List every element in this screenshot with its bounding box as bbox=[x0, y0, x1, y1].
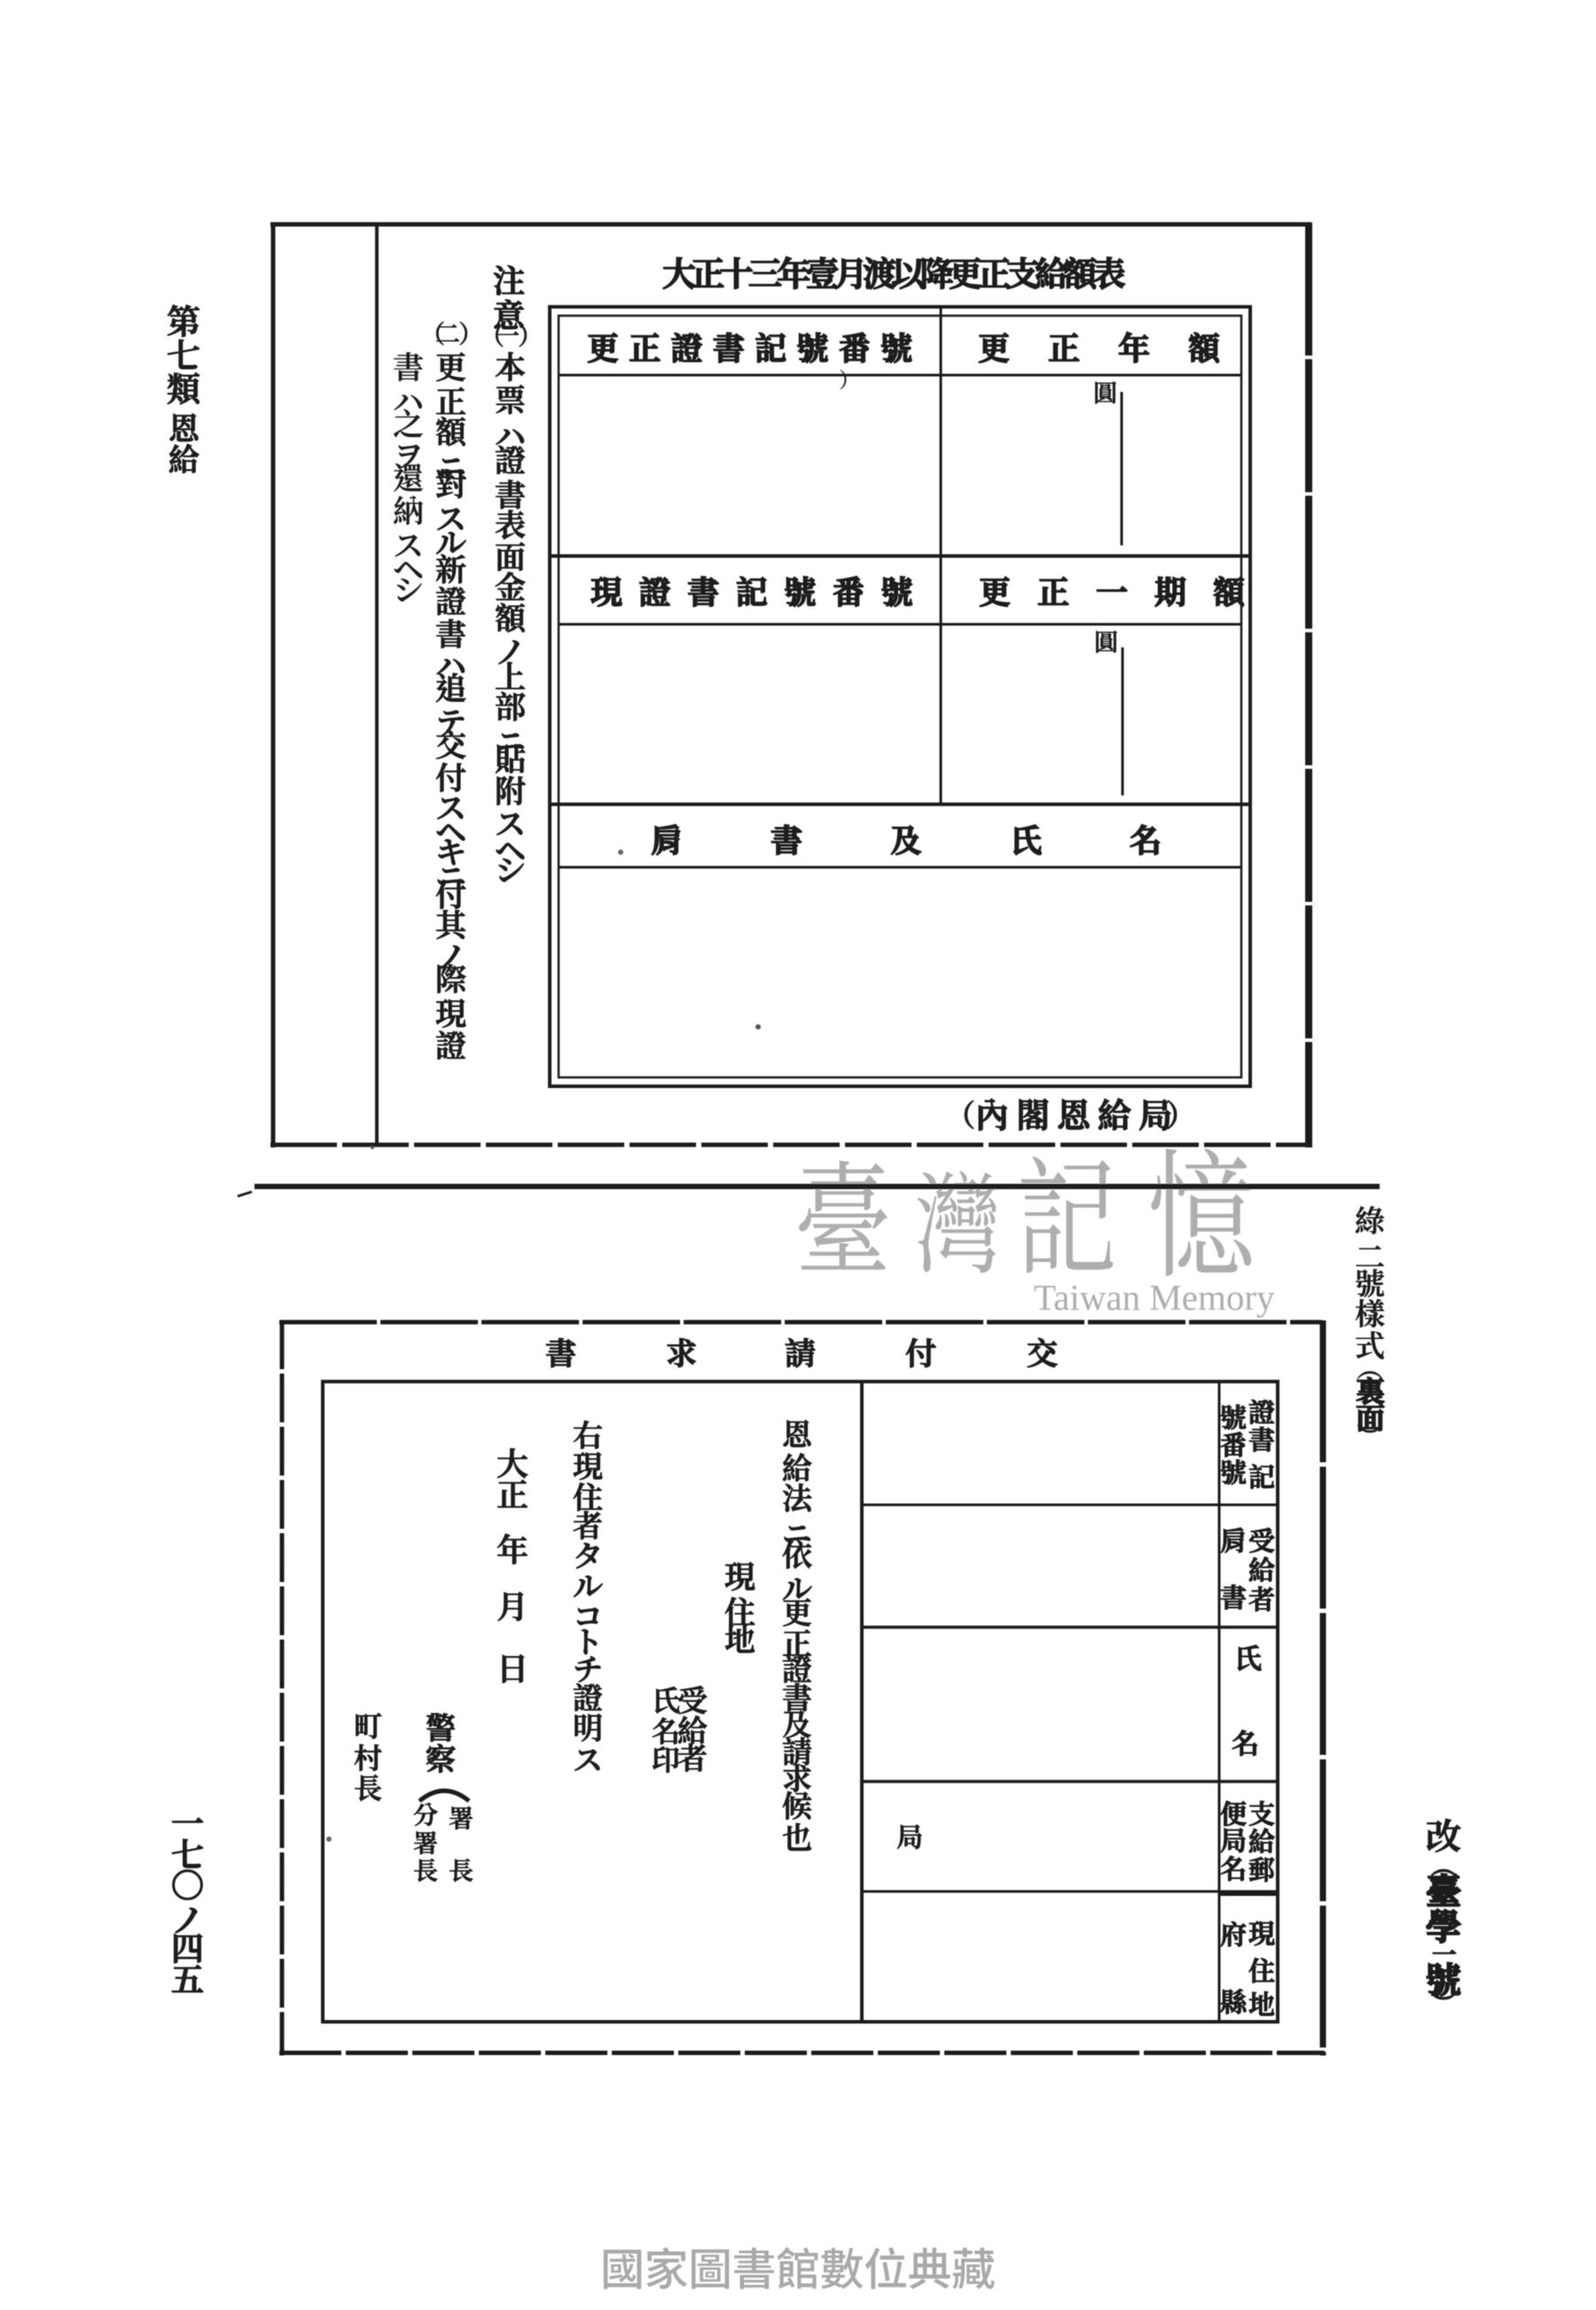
svg-text:Taiwan Memory: Taiwan Memory bbox=[1034, 1277, 1275, 1318]
